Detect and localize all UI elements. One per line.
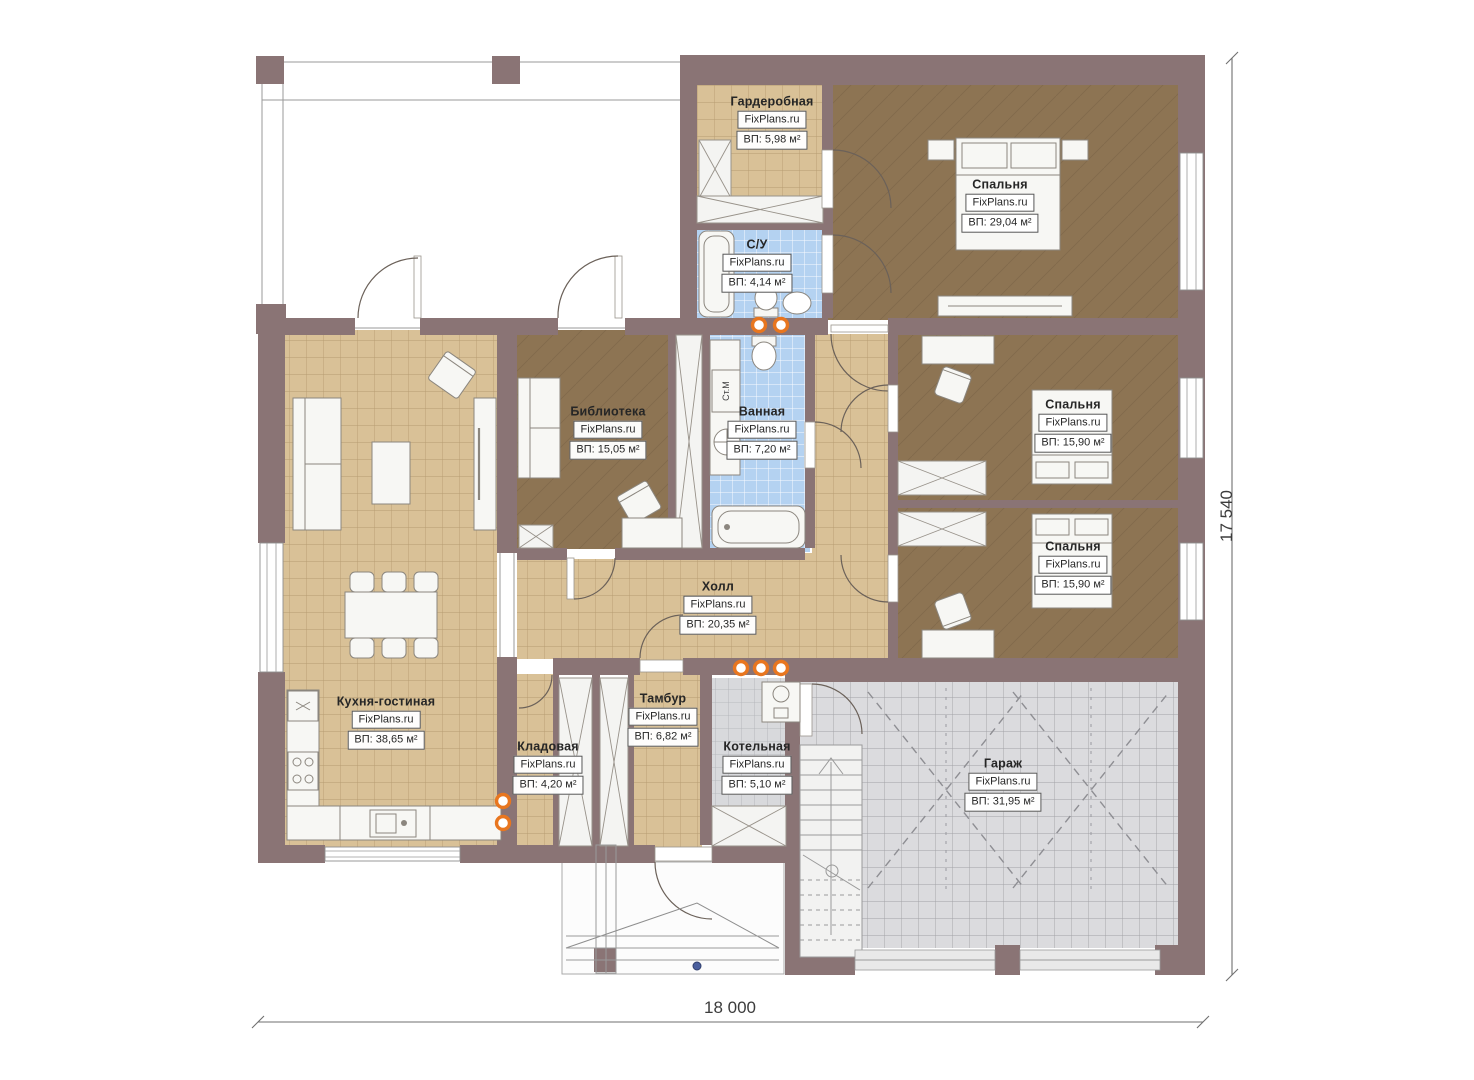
room-label-library: Библиотека FixPlans.ru ВП: 15,05 м²	[569, 405, 646, 460]
room-name: Спальня	[1045, 398, 1100, 412]
room-label-storage: Кладовая FixPlans.ru ВП: 4,20 м²	[512, 740, 583, 795]
room-label-bedroom-3: Спальня FixPlans.ru ВП: 15,90 м²	[1034, 540, 1111, 595]
room-label-garage: Гараж FixPlans.ru ВП: 31,95 м²	[964, 757, 1041, 812]
room-label-wardrobe: Гардеробная FixPlans.ru ВП: 5,98 м²	[730, 95, 813, 150]
room-name: Котельная	[723, 740, 790, 754]
room-watermark: FixPlans.ru	[727, 421, 796, 439]
room-area: ВП: 38,65 м²	[347, 731, 424, 749]
room-name: Холл	[702, 580, 734, 594]
room-name: Спальня	[1045, 540, 1100, 554]
room-watermark: FixPlans.ru	[628, 708, 697, 726]
room-area: ВП: 15,05 м²	[569, 441, 646, 459]
room-area: ВП: 5,98 м²	[736, 131, 807, 149]
room-name: Гараж	[984, 757, 1022, 771]
label-overlay: Ст.М 18 000 17 540 Гардеробная FixPlans.…	[0, 0, 1474, 1080]
room-label-boiler-room: Котельная FixPlans.ru ВП: 5,10 м²	[721, 740, 792, 795]
room-name: Библиотека	[570, 405, 645, 419]
room-name: Кухня-гостиная	[337, 695, 436, 709]
room-area: ВП: 4,14 м²	[721, 274, 792, 292]
room-area: ВП: 6,82 м²	[627, 728, 698, 746]
room-label-kitchen-living: Кухня-гостиная FixPlans.ru ВП: 38,65 м²	[337, 695, 436, 750]
room-name: Кладовая	[517, 740, 578, 754]
room-watermark: FixPlans.ru	[722, 254, 791, 272]
dimension-width: 18 000	[704, 998, 756, 1018]
room-label-vestibule: Тамбур FixPlans.ru ВП: 6,82 м²	[627, 692, 698, 747]
room-area: ВП: 5,10 м²	[721, 776, 792, 794]
washing-machine-label: Ст.М	[721, 381, 731, 401]
room-watermark: FixPlans.ru	[573, 421, 642, 439]
room-watermark: FixPlans.ru	[351, 711, 420, 729]
room-area: ВП: 15,90 м²	[1034, 576, 1111, 594]
floor-plan-stage: Ст.М 18 000 17 540 Гардеробная FixPlans.…	[0, 0, 1474, 1080]
room-name: Тамбур	[640, 692, 687, 706]
room-watermark: FixPlans.ru	[737, 111, 806, 129]
room-area: ВП: 15,90 м²	[1034, 434, 1111, 452]
room-name: Спальня	[972, 178, 1027, 192]
room-watermark: FixPlans.ru	[968, 773, 1037, 791]
room-label-bedroom-2: Спальня FixPlans.ru ВП: 15,90 м²	[1034, 398, 1111, 453]
room-area: ВП: 31,95 м²	[964, 793, 1041, 811]
room-name: Ванная	[739, 405, 786, 419]
room-area: ВП: 29,04 м²	[961, 214, 1038, 232]
room-label-wc: С/У FixPlans.ru ВП: 4,14 м²	[721, 238, 792, 293]
room-area: ВП: 7,20 м²	[726, 441, 797, 459]
room-watermark: FixPlans.ru	[722, 756, 791, 774]
room-label-bathroom: Ванная FixPlans.ru ВП: 7,20 м²	[726, 405, 797, 460]
room-name: Гардеробная	[730, 95, 813, 109]
room-watermark: FixPlans.ru	[683, 596, 752, 614]
room-watermark: FixPlans.ru	[1038, 556, 1107, 574]
room-watermark: FixPlans.ru	[513, 756, 582, 774]
room-label-hall: Холл FixPlans.ru ВП: 20,35 м²	[679, 580, 756, 635]
room-label-bedroom-1: Спальня FixPlans.ru ВП: 29,04 м²	[961, 178, 1038, 233]
room-area: ВП: 20,35 м²	[679, 616, 756, 634]
room-name: С/У	[747, 238, 768, 252]
dimension-height: 17 540	[1217, 490, 1237, 542]
room-watermark: FixPlans.ru	[965, 194, 1034, 212]
room-area: ВП: 4,20 м²	[512, 776, 583, 794]
room-watermark: FixPlans.ru	[1038, 414, 1107, 432]
